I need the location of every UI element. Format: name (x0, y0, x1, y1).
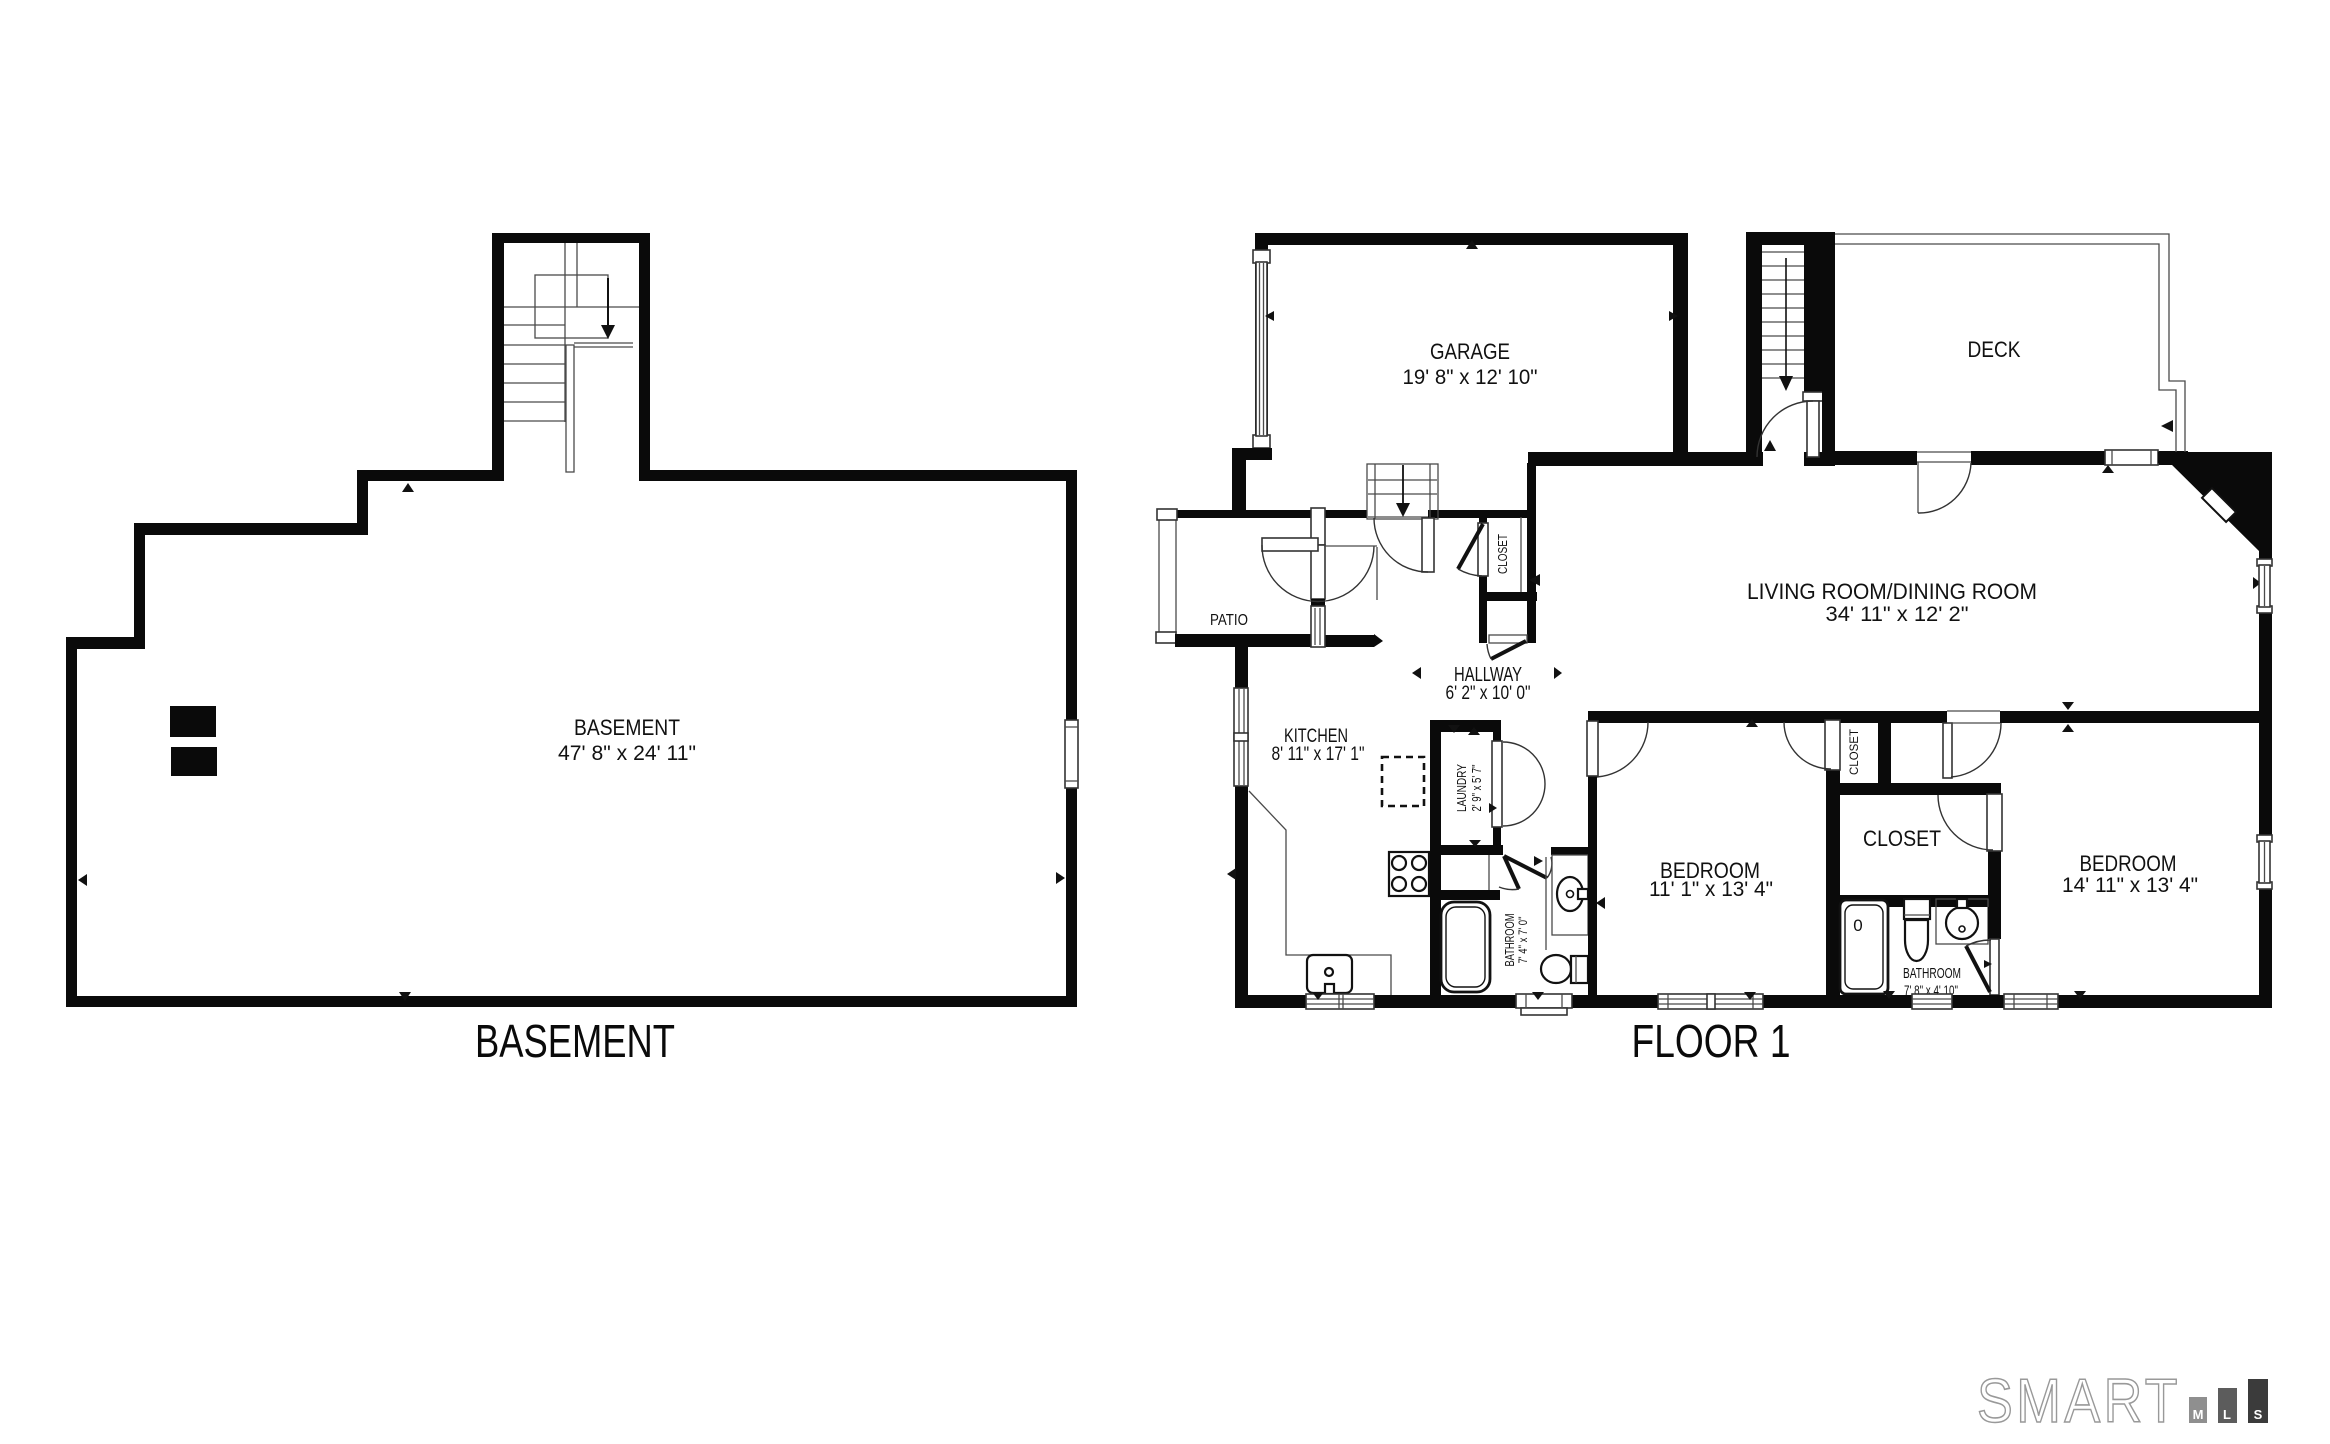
svg-text:19' 8" x 12' 10": 19' 8" x 12' 10" (1403, 366, 1538, 389)
svg-text:SMART: SMART (1977, 1367, 2181, 1436)
svg-text:7' 4" x 7' 0": 7' 4" x 7' 0" (1516, 917, 1530, 964)
svg-text:LIVING ROOM/DINING ROOM: LIVING ROOM/DINING ROOM (1747, 579, 2037, 604)
svg-text:CLOSET: CLOSET (1847, 728, 1861, 775)
svg-text:8' 11" x 17' 1": 8' 11" x 17' 1" (1272, 744, 1365, 765)
svg-text:11' 1" x 13' 4": 11' 1" x 13' 4" (1649, 878, 1773, 901)
svg-text:0: 0 (1853, 916, 1862, 935)
svg-text:GARAGE: GARAGE (1430, 339, 1510, 364)
svg-text:CLOSET: CLOSET (1863, 826, 1941, 851)
svg-text:2' 9" x 5' 7": 2' 9" x 5' 7" (1469, 764, 1484, 811)
svg-text:47' 8" x 24' 11": 47' 8" x 24' 11" (558, 742, 696, 765)
svg-text:M: M (2193, 1407, 2204, 1422)
svg-text:L: L (2223, 1407, 2231, 1422)
svg-text:BATHROOM: BATHROOM (1903, 965, 1961, 982)
svg-text:BATHROOM: BATHROOM (1502, 914, 1517, 967)
svg-text:14' 11" x 13' 4": 14' 11" x 13' 4" (2062, 874, 2198, 897)
svg-text:6' 2" x 10' 0": 6' 2" x 10' 0" (1446, 683, 1531, 704)
svg-text:BASEMENT: BASEMENT (475, 1015, 675, 1067)
svg-text:PATIO: PATIO (1210, 612, 1248, 629)
svg-text:FLOOR 1: FLOOR 1 (1632, 1015, 1791, 1067)
svg-text:S: S (2254, 1407, 2263, 1422)
svg-text:BASEMENT: BASEMENT (574, 715, 680, 740)
svg-text:CLOSET: CLOSET (1495, 534, 1510, 574)
svg-text:LAUNDRY: LAUNDRY (1454, 764, 1469, 812)
svg-text:34' 11" x 12' 2": 34' 11" x 12' 2" (1826, 603, 1969, 626)
svg-text:BEDROOM: BEDROOM (2080, 851, 2177, 876)
svg-text:DECK: DECK (1968, 337, 2021, 362)
